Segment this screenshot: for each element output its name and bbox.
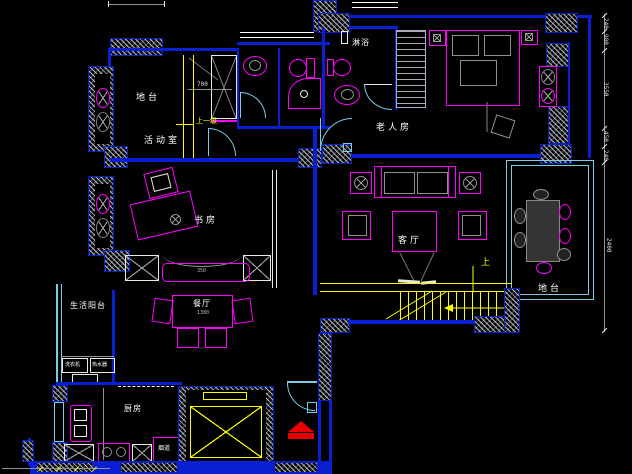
- window: [240, 32, 314, 38]
- glass-door: [276, 170, 277, 288]
- plant-icon: [463, 176, 477, 190]
- plant-icon: [354, 176, 368, 190]
- platform-edge-line: [193, 55, 194, 158]
- plant-icon: [96, 88, 110, 108]
- chair: [559, 204, 571, 220]
- wall-hatch: [320, 318, 350, 333]
- dimension-line: [604, 14, 605, 332]
- wall-segment: [329, 401, 332, 463]
- step-up-note: 上一级: [196, 117, 217, 125]
- wall-segment: [278, 48, 280, 128]
- burner-icon: [116, 447, 126, 457]
- plant-icon: [96, 218, 110, 238]
- cabinet-x-box: [125, 255, 159, 281]
- dimension-text: 240: [602, 150, 608, 161]
- dimension-text: 450: [602, 131, 608, 142]
- sink-basin: [74, 425, 87, 437]
- lamp-icon: [433, 34, 441, 42]
- sink-basin: [74, 409, 87, 421]
- dimension-tick: [108, 1, 109, 7]
- balcony-outline: [56, 284, 58, 385]
- wall-segment: [56, 382, 182, 385]
- wall-hatch: [274, 462, 318, 473]
- dimension-text-350: 350: [197, 268, 206, 274]
- wall-segment: [348, 320, 476, 324]
- burner-icon: [102, 447, 112, 457]
- wall-segment: [352, 154, 542, 158]
- wall-segment: [237, 42, 330, 45]
- dimension-text: 980: [602, 34, 608, 45]
- wall-segment: [313, 126, 317, 295]
- dimension-text: 2400: [605, 238, 611, 252]
- toilet-icon: [333, 59, 351, 76]
- dimension-text-1380: 1380: [197, 310, 209, 316]
- wall-hatch: [52, 385, 68, 402]
- lamp-icon: [525, 33, 533, 41]
- wall-hatch: [545, 13, 578, 33]
- stair-rail-line: [320, 283, 512, 284]
- elevator-door: [203, 392, 247, 400]
- toilet-tank: [306, 58, 315, 78]
- glass-door: [272, 170, 273, 288]
- dining-table-east: [526, 200, 560, 262]
- wall-hatch: [104, 146, 128, 168]
- plant-icon: [96, 112, 110, 132]
- pillow: [484, 35, 511, 56]
- cabinet-x-box: [64, 444, 94, 462]
- plant-icon: [96, 194, 110, 214]
- counter-dashed-line: [118, 386, 174, 388]
- stair-up-label: 上: [481, 258, 491, 268]
- chair: [514, 232, 526, 248]
- cistern: [341, 31, 348, 44]
- sofa-armrest: [374, 166, 382, 198]
- wall-segment: [237, 48, 239, 128]
- armchair-cushion: [462, 215, 481, 236]
- wall-hatch: [120, 462, 178, 473]
- wall-segment: [237, 126, 330, 129]
- wall-hatch: [22, 440, 34, 462]
- window: [54, 402, 64, 442]
- sofa-armrest: [448, 166, 456, 198]
- plant-icon: [541, 69, 555, 85]
- closet-hangers: [396, 30, 426, 108]
- washer-label: 洗衣机: [65, 362, 80, 368]
- dining-chair: [205, 328, 227, 348]
- dining-chair: [151, 298, 173, 324]
- room-label-elder: 老人房: [376, 123, 412, 133]
- dining-chair: [231, 298, 253, 324]
- dimension-text: 3550: [602, 82, 608, 96]
- wall-hatch: [298, 148, 322, 168]
- wall-segment: [322, 28, 325, 128]
- dimension-text-700: 700: [197, 82, 208, 88]
- chair: [533, 189, 549, 200]
- plant-icon: [541, 88, 555, 104]
- elevator-shaft: [190, 406, 262, 458]
- dimension-tick: [164, 1, 165, 7]
- balcony-divider: [62, 356, 114, 357]
- platform-edge-line: [183, 55, 184, 158]
- room-label-kitchen: 厨房: [124, 404, 142, 413]
- dining-chair: [177, 328, 199, 348]
- wall-segment: [110, 48, 239, 51]
- chair: [559, 228, 571, 244]
- chair: [536, 262, 552, 274]
- wardrobe: [211, 55, 237, 119]
- dimension-text: 240: [602, 18, 608, 29]
- cabinet-x-box: [132, 444, 152, 462]
- room-label-platform-e: 地台: [538, 284, 562, 294]
- dimension-line: [108, 4, 165, 5]
- bay-window-inner: [95, 74, 110, 144]
- wall-hatch: [318, 333, 332, 401]
- floor-plan-canvas[interactable]: 地台 活动室 700 上一级 淋浴 老人房 书房: [0, 0, 632, 474]
- wall-hatch: [504, 288, 520, 333]
- toilet-icon: [289, 59, 307, 77]
- room-label-shower: 淋浴: [352, 38, 370, 47]
- room-label-platform-nw: 地台: [136, 93, 160, 103]
- blanket: [460, 60, 497, 86]
- desk-plant-icon: [170, 214, 181, 225]
- wall-segment: [568, 42, 570, 144]
- wall-hatch: [548, 106, 570, 144]
- wall-segment: [318, 401, 321, 463]
- entry-arrow-icon: [288, 421, 314, 432]
- flue-label: 烟道: [158, 446, 170, 452]
- door-hinge: [307, 402, 317, 413]
- pillow: [452, 35, 479, 56]
- room-label-activity: 活动室: [144, 136, 180, 146]
- sink-basin: [249, 60, 261, 71]
- shower-head-icon: [300, 90, 308, 98]
- wall-hatch: [110, 38, 163, 56]
- water-heater-label: 热水器: [92, 362, 107, 368]
- chair: [514, 208, 526, 224]
- sofa-cushion: [384, 172, 415, 194]
- window: [352, 2, 398, 8]
- chair: [557, 248, 571, 261]
- room-label-dining: 餐厅: [193, 299, 211, 308]
- dimension-line: [188, 89, 232, 90]
- wall-hatch: [546, 43, 570, 67]
- wall-segment: [110, 158, 322, 162]
- room-label-living: 客厅: [398, 236, 422, 246]
- step-line: [176, 124, 194, 125]
- sink-basin: [341, 89, 354, 100]
- sofa-cushion: [417, 172, 448, 194]
- entry-arrow-bar: [288, 433, 314, 439]
- room-label-balcony: 生活阳台: [70, 301, 106, 310]
- wall-segment: [588, 18, 591, 158]
- room-label-study: 书房: [194, 216, 218, 226]
- door-hinge: [343, 143, 352, 152]
- armchair-cushion: [348, 215, 367, 236]
